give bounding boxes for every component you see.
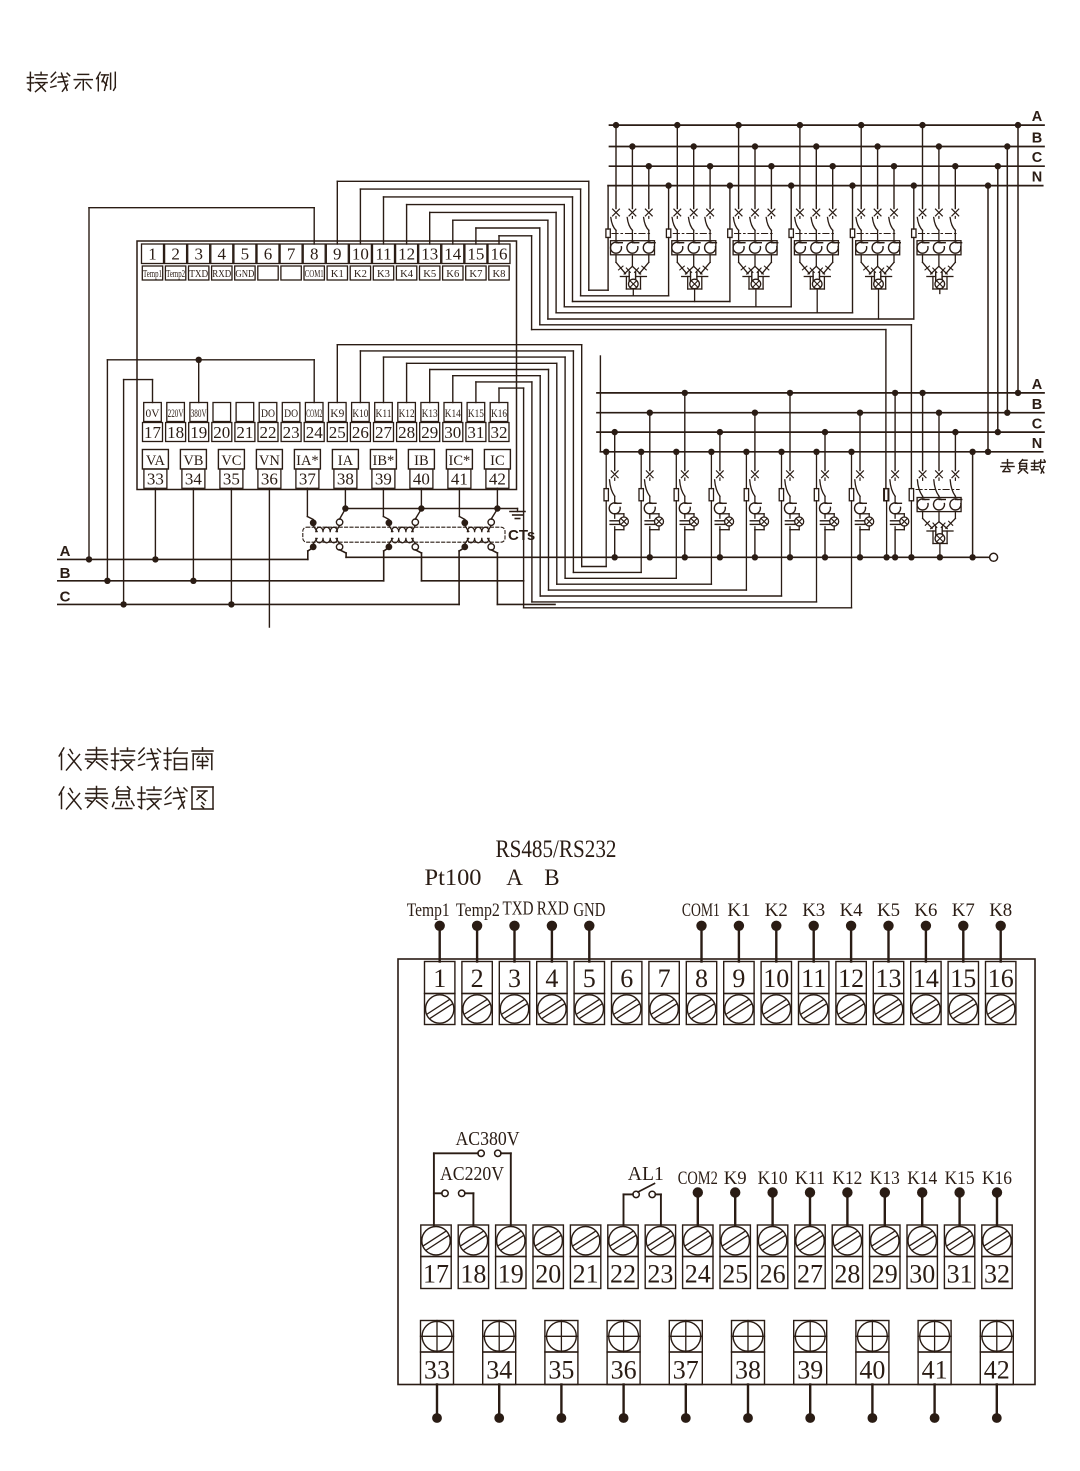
svg-text:32: 32 [491, 423, 508, 442]
svg-text:41: 41 [922, 1356, 948, 1385]
svg-text:27: 27 [375, 423, 393, 442]
svg-text:32: 32 [984, 1260, 1010, 1289]
svg-text:K3: K3 [802, 900, 825, 921]
svg-text:K7: K7 [469, 268, 482, 280]
svg-text:Pt100: Pt100 [425, 865, 482, 890]
svg-text:23: 23 [283, 423, 300, 442]
svg-text:RXD: RXD [212, 268, 231, 280]
svg-text:3: 3 [194, 245, 203, 264]
svg-text:K16: K16 [491, 408, 507, 420]
svg-text:4: 4 [218, 245, 227, 264]
svg-text:K1: K1 [727, 900, 750, 921]
svg-text:2: 2 [171, 245, 180, 264]
svg-text:VC: VC [221, 453, 241, 469]
svg-text:VA: VA [146, 453, 166, 469]
svg-text:K10: K10 [352, 408, 368, 420]
svg-text:42: 42 [984, 1356, 1010, 1385]
svg-text:K3: K3 [377, 268, 390, 280]
svg-text:K14: K14 [445, 408, 461, 420]
svg-text:N: N [1032, 170, 1042, 186]
svg-text:RXD: RXD [537, 898, 569, 920]
svg-text:A: A [1032, 377, 1043, 393]
svg-text:40: 40 [413, 470, 430, 489]
svg-text:33: 33 [424, 1356, 450, 1385]
svg-text:TXD: TXD [503, 898, 534, 920]
svg-text:2: 2 [471, 964, 484, 993]
svg-text:B: B [1032, 397, 1042, 413]
svg-text:14: 14 [444, 245, 462, 264]
svg-text:VB: VB [183, 453, 203, 469]
svg-text:Temp1: Temp1 [407, 900, 450, 921]
svg-text:7: 7 [287, 245, 296, 264]
svg-text:3: 3 [508, 964, 521, 993]
svg-text:9: 9 [333, 245, 342, 264]
svg-text:A: A [1032, 109, 1043, 125]
svg-text:42: 42 [489, 470, 506, 489]
svg-text:39: 39 [797, 1356, 823, 1385]
svg-text:27: 27 [797, 1260, 823, 1289]
svg-text:34: 34 [486, 1356, 512, 1385]
svg-text:220V: 220V [168, 408, 184, 420]
svg-text:10: 10 [763, 964, 789, 993]
svg-text:0V: 0V [146, 408, 161, 420]
svg-text:Temp1: Temp1 [143, 268, 162, 280]
svg-text:K11: K11 [376, 408, 392, 420]
svg-text:31: 31 [947, 1260, 973, 1289]
svg-text:17: 17 [144, 423, 162, 442]
svg-text:36: 36 [611, 1356, 637, 1385]
svg-text:30: 30 [444, 423, 461, 442]
svg-text:10: 10 [352, 245, 369, 264]
svg-text:C: C [1032, 417, 1043, 433]
svg-text:K12: K12 [399, 408, 415, 420]
svg-text:COM2: COM2 [678, 1168, 718, 1189]
svg-text:AL1: AL1 [628, 1163, 664, 1185]
svg-text:IA: IA [338, 453, 354, 469]
svg-text:8: 8 [310, 245, 319, 264]
svg-text:IC: IC [490, 453, 505, 469]
svg-text:K8: K8 [989, 900, 1012, 921]
svg-text:19: 19 [498, 1260, 524, 1289]
svg-text:COM2: COM2 [306, 408, 322, 420]
svg-text:12: 12 [398, 245, 415, 264]
svg-text:K16: K16 [982, 1168, 1012, 1189]
svg-text:38: 38 [337, 470, 354, 489]
svg-text:4: 4 [545, 964, 558, 993]
svg-text:TXD: TXD [189, 268, 208, 280]
svg-text:K4: K4 [840, 900, 863, 921]
svg-text:K10: K10 [758, 1168, 788, 1189]
svg-text:34: 34 [185, 470, 203, 489]
svg-text:16: 16 [988, 964, 1014, 993]
svg-text:COM1: COM1 [682, 900, 720, 921]
svg-text:K9: K9 [330, 408, 344, 420]
svg-text:CTs: CTs [508, 527, 535, 544]
svg-text:31: 31 [467, 423, 484, 442]
svg-text:21: 21 [236, 423, 253, 442]
svg-text:380V: 380V [191, 408, 207, 420]
svg-text:K13: K13 [870, 1168, 900, 1189]
svg-text:29: 29 [421, 423, 438, 442]
svg-text:K15: K15 [945, 1168, 975, 1189]
svg-text:26: 26 [760, 1260, 786, 1289]
svg-text:RS485/RS232: RS485/RS232 [496, 836, 617, 863]
svg-text:C: C [60, 589, 71, 606]
svg-text:8: 8 [695, 964, 708, 993]
svg-text:23: 23 [647, 1260, 673, 1289]
svg-text:25: 25 [722, 1260, 748, 1289]
svg-text:37: 37 [673, 1356, 699, 1385]
svg-text:C: C [1032, 150, 1043, 166]
svg-text:A: A [60, 543, 71, 560]
svg-text:N: N [1032, 436, 1042, 452]
svg-text:Temp2: Temp2 [166, 268, 185, 280]
svg-text:28: 28 [398, 423, 415, 442]
svg-text:K2: K2 [354, 268, 367, 280]
svg-text:39: 39 [375, 470, 392, 489]
svg-text:IA*: IA* [296, 453, 319, 469]
svg-text:B: B [60, 565, 71, 582]
svg-text:20: 20 [213, 423, 230, 442]
svg-text:38: 38 [735, 1356, 761, 1385]
svg-text:13: 13 [876, 964, 902, 993]
svg-text:37: 37 [299, 470, 317, 489]
svg-text:15: 15 [950, 964, 976, 993]
svg-text:K11: K11 [795, 1168, 825, 1189]
svg-text:22: 22 [260, 423, 277, 442]
svg-text:17: 17 [423, 1260, 449, 1289]
svg-text:15: 15 [467, 245, 484, 264]
svg-text:B: B [1032, 131, 1042, 147]
svg-text:18: 18 [460, 1260, 486, 1289]
svg-text:IB: IB [414, 453, 429, 469]
svg-text:DO: DO [261, 408, 275, 420]
svg-text:13: 13 [421, 245, 438, 264]
svg-text:A: A [506, 865, 523, 890]
svg-text:14: 14 [913, 964, 939, 993]
svg-text:33: 33 [147, 470, 164, 489]
svg-text:K14: K14 [907, 1168, 937, 1189]
svg-text:24: 24 [306, 423, 324, 442]
svg-text:5: 5 [241, 245, 250, 264]
svg-text:18: 18 [167, 423, 184, 442]
svg-text:1: 1 [433, 964, 446, 993]
svg-text:K12: K12 [832, 1168, 862, 1189]
svg-text:K5: K5 [423, 268, 436, 280]
svg-text:K9: K9 [724, 1168, 747, 1189]
svg-text:24: 24 [685, 1260, 711, 1289]
svg-text:22: 22 [610, 1260, 636, 1289]
svg-text:41: 41 [451, 470, 468, 489]
svg-text:K5: K5 [877, 900, 900, 921]
svg-text:K15: K15 [468, 408, 484, 420]
svg-text:35: 35 [223, 470, 240, 489]
svg-text:GND: GND [573, 899, 605, 921]
svg-text:12: 12 [838, 964, 864, 993]
svg-text:21: 21 [573, 1260, 599, 1289]
svg-text:29: 29 [872, 1260, 898, 1289]
svg-text:36: 36 [261, 470, 278, 489]
svg-text:K4: K4 [400, 268, 413, 280]
svg-text:AC380V: AC380V [456, 1128, 520, 1150]
svg-text:19: 19 [190, 423, 207, 442]
svg-text:6: 6 [264, 245, 273, 264]
svg-text:COM1: COM1 [305, 268, 324, 280]
svg-text:6: 6 [620, 964, 633, 993]
svg-text:11: 11 [375, 245, 391, 264]
svg-text:GND: GND [235, 268, 254, 280]
svg-text:K7: K7 [952, 900, 975, 921]
svg-text:K6: K6 [914, 900, 937, 921]
svg-text:35: 35 [548, 1356, 574, 1385]
svg-text:40: 40 [859, 1356, 885, 1385]
svg-text:7: 7 [658, 964, 671, 993]
svg-text:K13: K13 [422, 408, 438, 420]
svg-text:VN: VN [259, 453, 280, 469]
svg-text:28: 28 [834, 1260, 860, 1289]
svg-text:25: 25 [329, 423, 346, 442]
svg-text:16: 16 [491, 245, 508, 264]
svg-text:K6: K6 [446, 268, 459, 280]
svg-text:26: 26 [352, 423, 369, 442]
svg-text:AC220V: AC220V [440, 1163, 504, 1185]
svg-text:9: 9 [732, 964, 745, 993]
svg-text:30: 30 [909, 1260, 935, 1289]
svg-text:11: 11 [801, 964, 826, 993]
svg-text:K8: K8 [493, 268, 506, 280]
svg-text:B: B [544, 865, 559, 890]
svg-text:IC*: IC* [449, 453, 471, 469]
svg-text:20: 20 [535, 1260, 561, 1289]
svg-text:1: 1 [148, 245, 157, 264]
svg-text:K1: K1 [331, 268, 344, 280]
svg-text:Temp2: Temp2 [456, 900, 500, 921]
svg-text:5: 5 [583, 964, 596, 993]
svg-text:K2: K2 [765, 900, 788, 921]
svg-text:DO: DO [284, 408, 298, 420]
svg-text:IB*: IB* [373, 453, 395, 469]
